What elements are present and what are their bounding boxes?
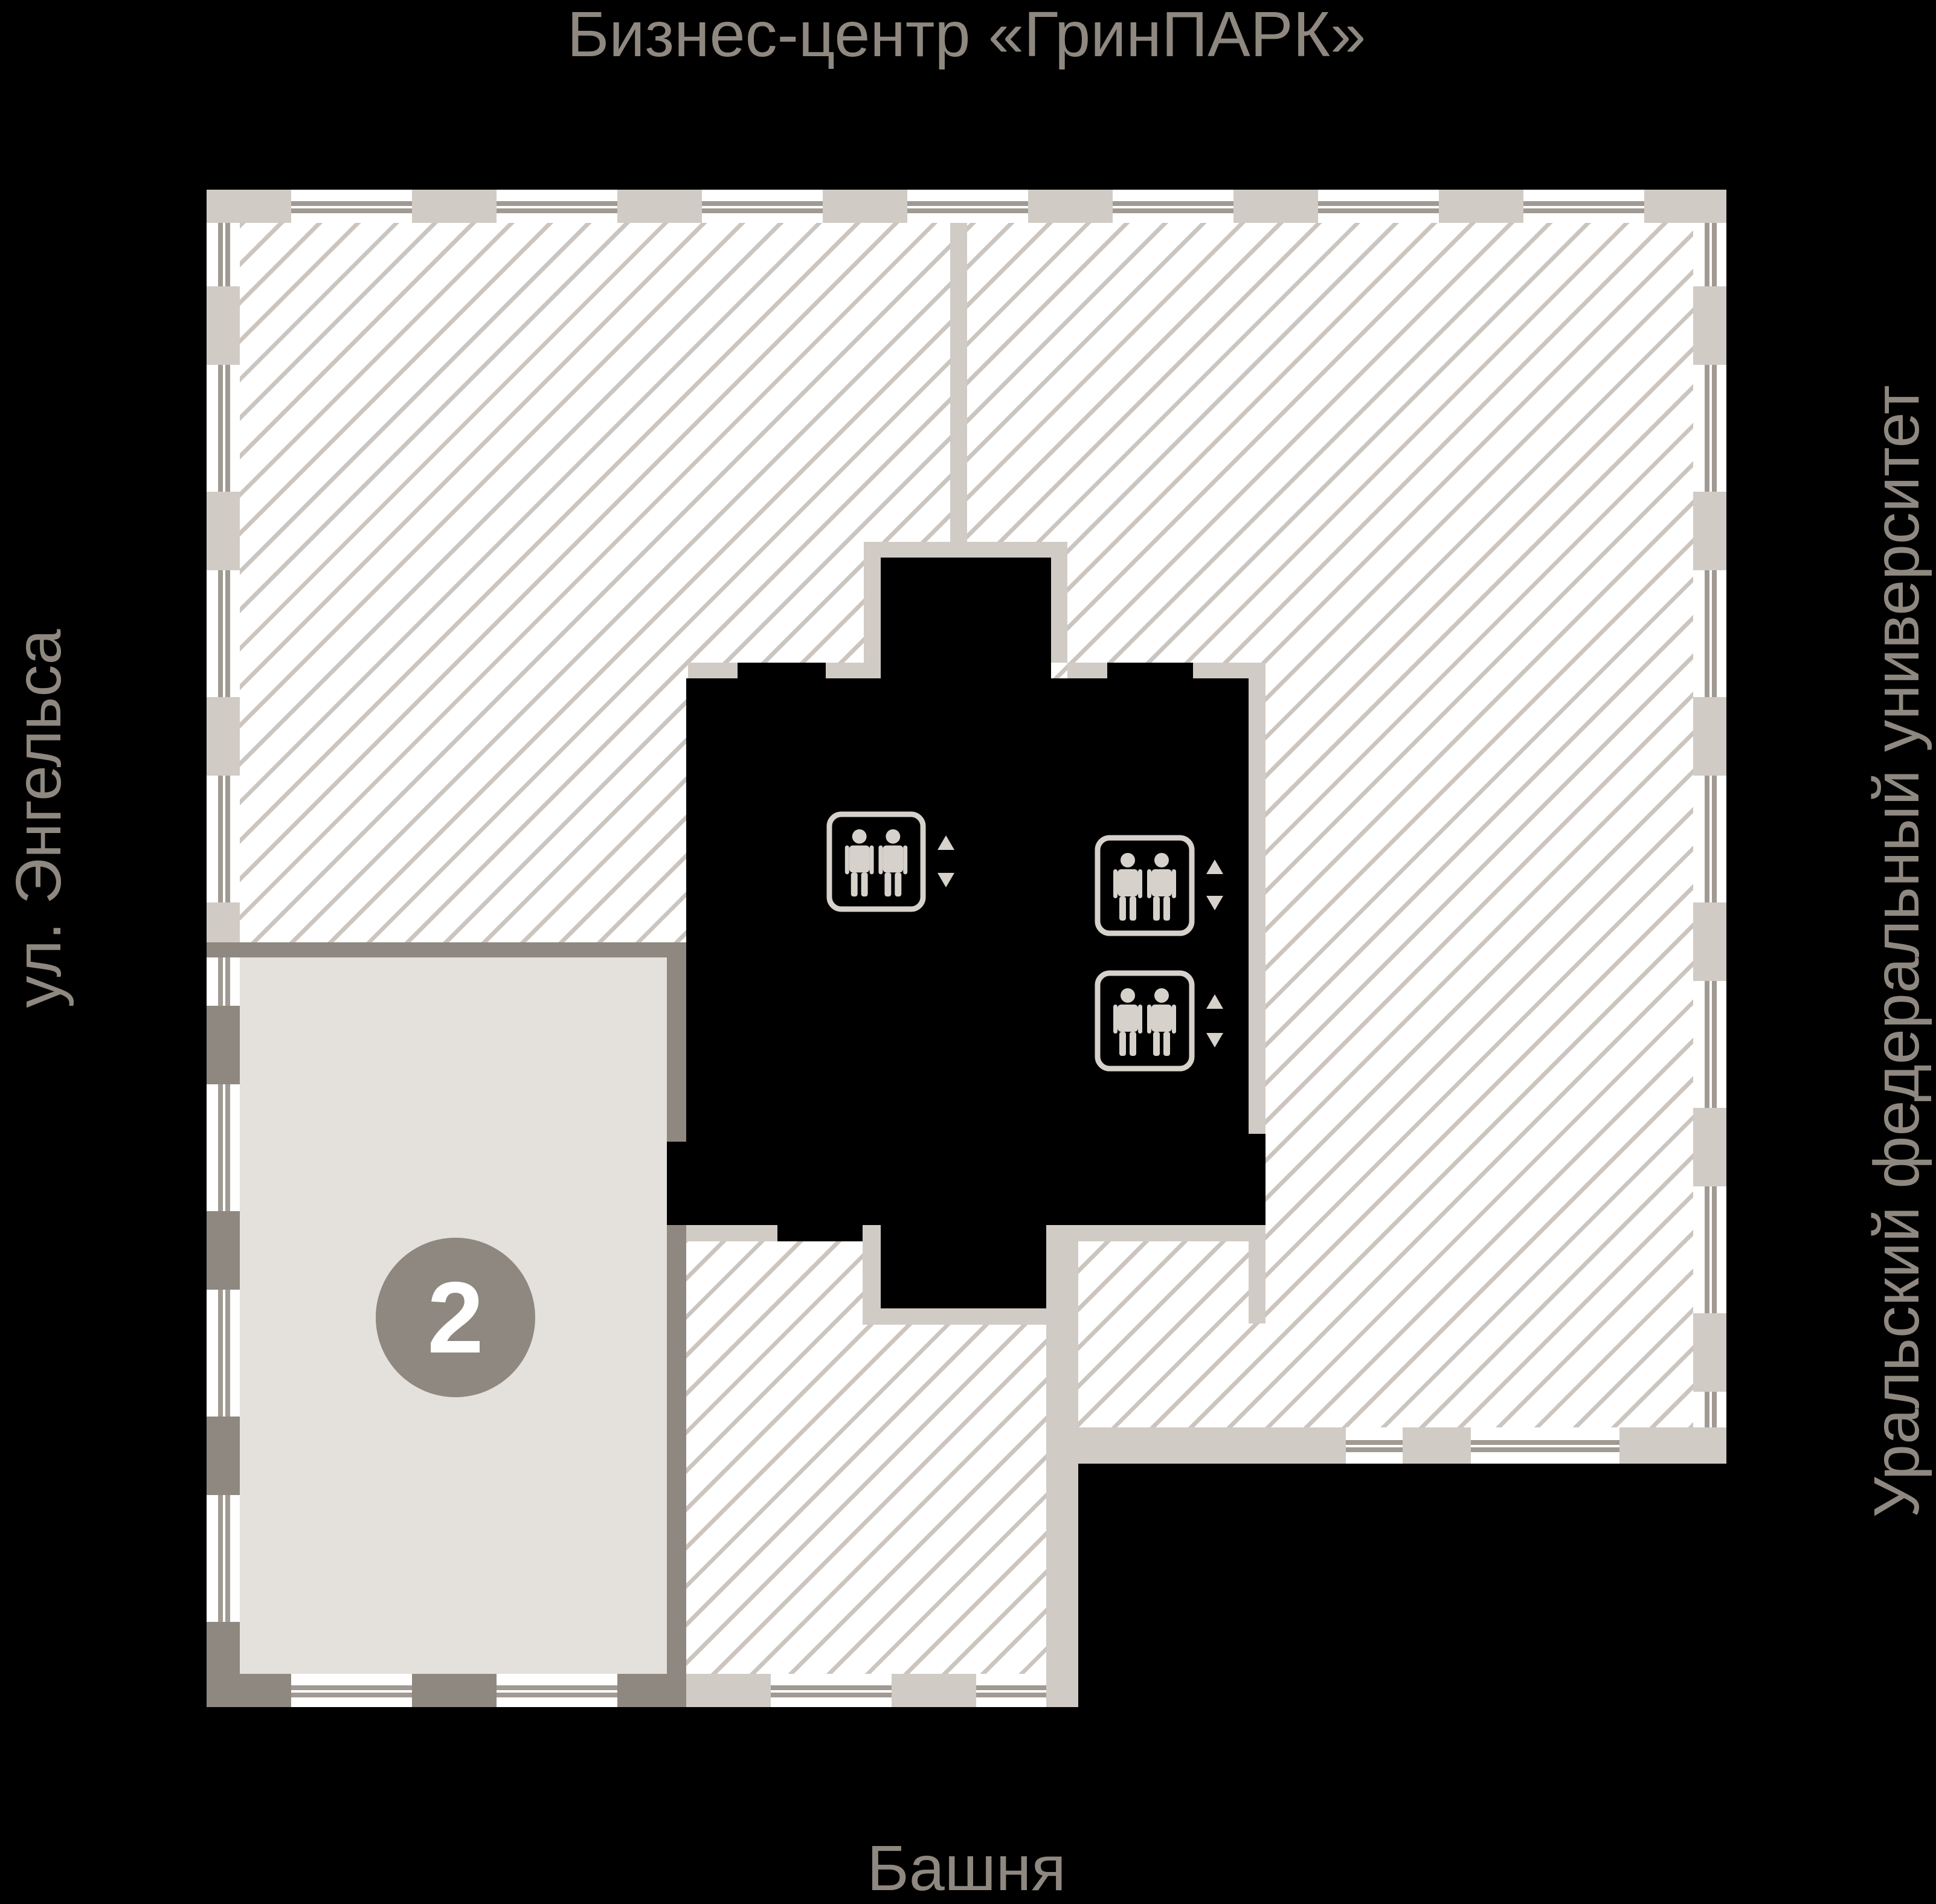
- up-arrow-icon: [1206, 860, 1223, 874]
- elevator-icon: [1095, 835, 1195, 936]
- unit-2-wall-right-upper: [667, 957, 686, 1142]
- up-arrow-icon: [937, 835, 954, 850]
- core-wall-protrusion-right: [1051, 558, 1067, 663]
- window-band-bottom-unit: [207, 1674, 686, 1707]
- window-band-top: [207, 190, 1726, 223]
- window-band-right-section-bottom: [1078, 1427, 1726, 1464]
- window-band-bottom-middle: [686, 1674, 1046, 1707]
- window-glass-segment: [1471, 1427, 1619, 1464]
- up-arrow-icon: [1206, 994, 1223, 1009]
- core-door-top-right: [1107, 663, 1193, 678]
- label-left-street: ул. Энгельса: [7, 629, 71, 1008]
- elevator-icon: [826, 811, 926, 912]
- core-door-right: [1249, 1134, 1265, 1225]
- floorplan-canvas: Бизнес-центр «ГринПАРК» Башня ул. Энгель…: [0, 0, 1936, 1890]
- core-wall-protrusion-left: [864, 558, 881, 678]
- unit-2-number: 2: [427, 1267, 483, 1368]
- unit-2-wall-top: [207, 942, 686, 957]
- down-arrow-icon: [1206, 896, 1223, 910]
- stair-wall-left: [863, 1225, 881, 1308]
- window-band-left-upper: [207, 223, 240, 942]
- label-right-university: Уральский федеральный университет: [1865, 385, 1929, 1517]
- unit-2-entrance-door: [667, 1142, 686, 1225]
- window-band-right: [1693, 223, 1726, 1427]
- plan-cutout: [1078, 1464, 1726, 1707]
- partition-top-vertical: [950, 223, 967, 542]
- unit-2-badge[interactable]: 2: [376, 1238, 535, 1397]
- elevator-icon: [1095, 970, 1195, 1072]
- core-door-top-left: [738, 663, 826, 678]
- down-arrow-icon: [937, 873, 954, 887]
- core-shaft-bottom: [881, 1225, 1046, 1308]
- core-shaft-top: [881, 558, 1051, 678]
- wall-bottom-rooms-divider: [1046, 1225, 1078, 1707]
- core-wall-protrusion-top: [864, 542, 1067, 558]
- label-bottom-tower: Башня: [207, 1836, 1726, 1900]
- label-top-business-center: Бизнес-центр «ГринПАРК»: [207, 2, 1726, 66]
- unit-2-wall-right-lower: [667, 1225, 686, 1674]
- floor-plan: 2: [207, 190, 1726, 1707]
- stair-wall-bottom: [863, 1308, 1046, 1325]
- window-band-left-unit: [207, 942, 240, 1707]
- core-main: [686, 678, 1249, 1225]
- window-glass-segment: [1346, 1427, 1403, 1464]
- down-arrow-icon: [1206, 1033, 1223, 1047]
- core-door-bottom: [777, 1225, 863, 1241]
